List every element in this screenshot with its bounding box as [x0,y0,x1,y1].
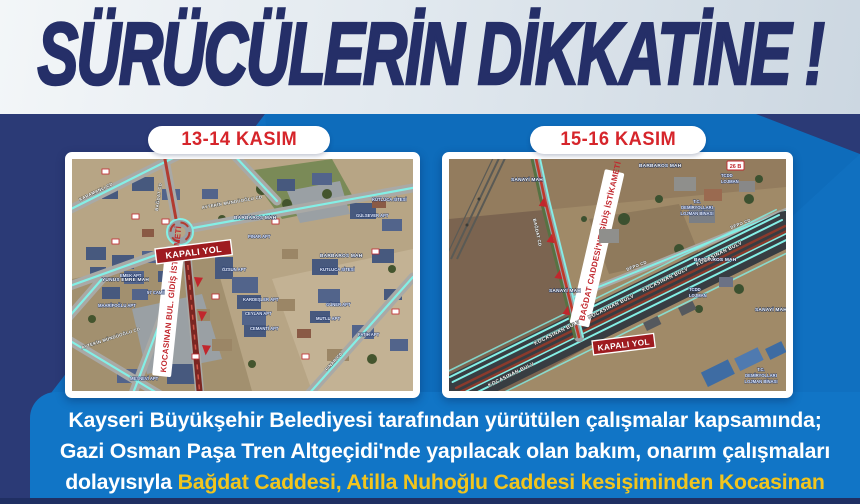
place-label: LOJMAN [721,179,739,184]
place-label: CEMANTİ APT [250,326,279,331]
place-label: LOJMAN BİNASI [744,379,777,384]
place-label: DEMİRYOLLARI [745,373,777,378]
place-label: KUTLUCA SİTESİ [320,267,355,272]
place-label: EMEK APT [120,273,142,278]
date-badge-13-14: 13-14 KASIM [148,126,330,154]
place-label: KUTLUCA SİTESİ [372,197,407,202]
header-strip: SÜRÜCÜLERİN DİKKATİNE ! [0,0,860,114]
place-label: MUTLU APT [316,316,340,321]
place-label: KARDEŞLER APT [243,297,279,302]
poster-title: SÜRÜCÜLERİN DİKKATİNE ! [37,3,823,105]
place-label: T.C. [757,367,764,372]
announcement-line-2: Gazi Osman Paşa Tren Altgeçidi'nde yapıl… [34,436,856,467]
area-label: BARBAROS MAH [639,163,682,169]
announcement-line-1: Kayseri Büyükşehir Belediyesi tarafından… [34,405,856,436]
place-label: 57 CAMİİ [147,290,165,295]
place-label: TCDD [721,173,733,178]
announcement-line-3-highlight: Bağdat Caddesi, Atilla Nuhoğlu Caddesi k… [178,470,825,494]
announcement-panel: Kayseri Büyükşehir Belediyesi tarafından… [30,392,860,498]
date-label: 15-16 KASIM [560,129,676,151]
announcement-line-3: dolayısıyla Bağdat Caddesi, Atilla Nuhoğ… [34,467,856,498]
place-label: GÜNER APT [326,302,351,307]
date-badge-15-16: 15-16 KASIM [530,126,706,154]
place-label: GÜLSEVER APT [356,213,389,218]
announcement-poster: SÜRÜCÜLERİN DİKKATİNE ! 13-14 KASIM 15-1… [0,0,860,504]
place-label: DEMİRYOLLARI [681,205,713,210]
area-label: SANAYİ MAH [549,287,581,294]
place-label: FATİH APT [358,332,380,337]
satellite-map-left: KOCASINAN BUL. GİDİŞ İSTİKAMETİ KAPALI Y… [72,159,413,391]
satellite-map-right: BAĞDAT CADDESİ'NE GİDİŞ İSTİKAMETİ KAPAL… [449,159,786,391]
area-label: SANAYİ MAH [511,176,543,183]
place-label: TCDD [689,287,701,292]
map-panel-15-16-kasim: BAĞDAT CADDESİ'NE GİDİŞ İSTİKAMETİ KAPAL… [442,152,793,398]
address-badge: 26 B [727,161,744,170]
place-label: ÖZSUN APT [222,267,246,272]
place-label: T.C. [693,199,700,204]
place-label: LOJMAN [689,293,707,298]
area-label: BARBAROS MAH [320,253,363,259]
place-label: CEYLAN APT [245,311,272,316]
map-panel-13-14-kasim: KOCASINAN BUL. GİDİŞ İSTİKAMETİ KAPALI Y… [65,152,420,398]
bottom-navy-strip [0,498,860,504]
date-label: 13-14 KASIM [181,129,297,151]
area-label: SANAYİ MAH [755,306,786,313]
place-label: MESNEVİ APT [130,376,159,381]
place-label: LOJMAN BİNASI [680,211,713,216]
announcement-line-3-prefix: dolayısıyla [65,470,172,494]
place-label: MAARİFOĞLU APT [98,303,136,308]
badge-label: 26 B [730,164,742,170]
area-label: BARBAROS MAH [234,215,277,221]
place-label: PINAR APT [248,234,271,239]
